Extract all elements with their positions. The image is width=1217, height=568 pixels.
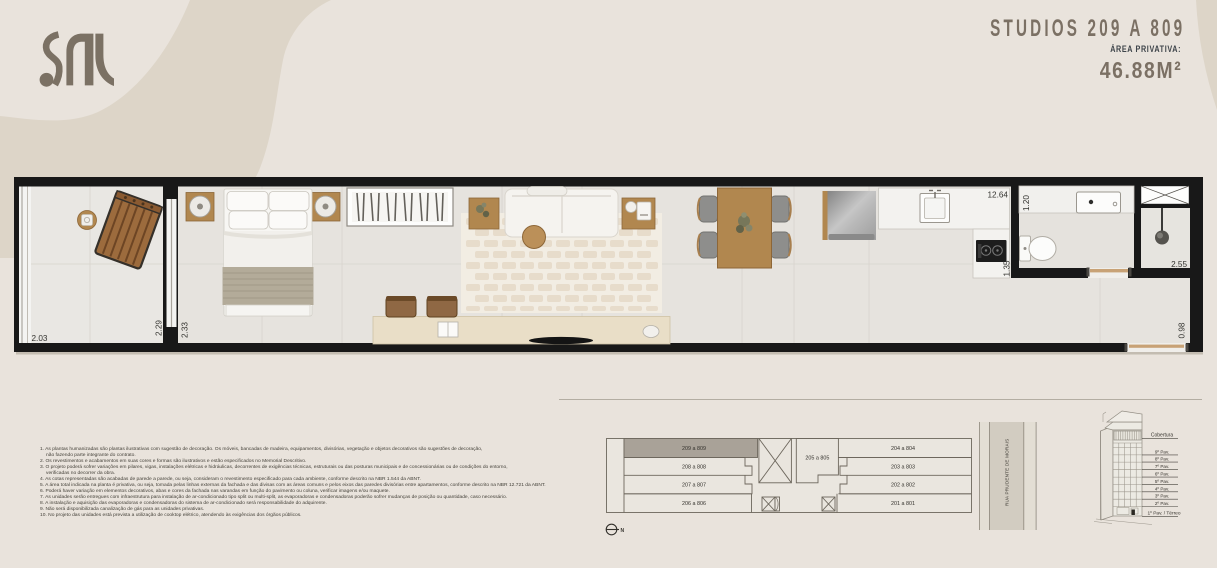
- svg-text:4. As cotas representadas são: 4. As cotas representadas são acabadas d…: [40, 476, 421, 482]
- svg-text:N: N: [621, 528, 625, 534]
- svg-text:202 a 802: 202 a 802: [891, 483, 915, 489]
- svg-text:10. No projeto das unidades es: 10. No projeto das unidades está previst…: [40, 512, 302, 518]
- svg-text:0.98: 0.98: [1178, 322, 1187, 338]
- svg-text:verificadas no decorrer da obr: verificadas no decorrer da obra.: [46, 470, 115, 476]
- svg-text:203 a 803: 203 a 803: [891, 465, 915, 471]
- svg-text:1. As plantas humanizadas são: 1. As plantas humanizadas são plantas il…: [40, 446, 482, 452]
- svg-text:205 a 805: 205 a 805: [805, 456, 829, 462]
- svg-text:9º Pav.: 9º Pav.: [1155, 449, 1169, 454]
- svg-text:201 a 801: 201 a 801: [891, 501, 915, 507]
- svg-text:7. As unidades serão entregues: 7. As unidades serão entregues com infra…: [40, 494, 507, 500]
- svg-text:5. A área total indicada na pl: 5. A área total indicada na planta é pri…: [40, 482, 546, 488]
- svg-text:6. Poderá haver variação em el: 6. Poderá haver variação em elementos de…: [40, 488, 390, 494]
- svg-text:206 a 806: 206 a 806: [682, 501, 706, 507]
- svg-text:4º Pav.: 4º Pav.: [1155, 486, 1169, 491]
- svg-text:9. Não será disponibilizada ca: 9. Não será disponibilizada canalização …: [40, 506, 204, 512]
- svg-text:5º Pav.: 5º Pav.: [1155, 479, 1169, 484]
- svg-text:8. A instalação e aquisição da: 8. A instalação e aquisição das evaporad…: [40, 500, 327, 506]
- svg-text:3. O projeto poderá sofrer var: 3. O projeto poderá sofrer variações em …: [40, 464, 508, 470]
- svg-text:6º Pav.: 6º Pav.: [1155, 472, 1169, 477]
- svg-text:Cobertura: Cobertura: [1151, 433, 1173, 439]
- svg-text:1.20: 1.20: [1022, 195, 1031, 211]
- svg-text:207 a 807: 207 a 807: [682, 483, 706, 489]
- svg-text:209 a 809: 209 a 809: [682, 446, 706, 452]
- svg-text:1º Pav. / Térreo: 1º Pav. / Térreo: [1147, 511, 1180, 517]
- svg-text:2.55: 2.55: [1171, 260, 1187, 269]
- svg-text:8º Pav.: 8º Pav.: [1155, 457, 1169, 462]
- svg-text:1.35: 1.35: [1003, 260, 1012, 276]
- svg-text:2º Pav.: 2º Pav.: [1155, 501, 1169, 506]
- svg-text:208 a 808: 208 a 808: [682, 465, 706, 471]
- svg-text:2. Os revestimentos e acabamen: 2. Os revestimentos e acabamentos em sua…: [40, 458, 306, 464]
- svg-text:RUA PRUDENTE DE MORAIS: RUA PRUDENTE DE MORAIS: [1005, 439, 1010, 506]
- svg-text:2.33: 2.33: [181, 322, 190, 338]
- svg-text:3º Pav.: 3º Pav.: [1155, 494, 1169, 499]
- svg-text:2.29: 2.29: [155, 320, 164, 336]
- svg-text:2.03: 2.03: [32, 334, 48, 343]
- svg-text:12.64: 12.64: [988, 191, 1009, 200]
- svg-text:204 a 804: 204 a 804: [891, 446, 915, 452]
- svg-text:7º Pav.: 7º Pav.: [1155, 464, 1169, 469]
- svg-text:não fazendo parte integrante d: não fazendo parte integrante do contrato…: [46, 452, 136, 458]
